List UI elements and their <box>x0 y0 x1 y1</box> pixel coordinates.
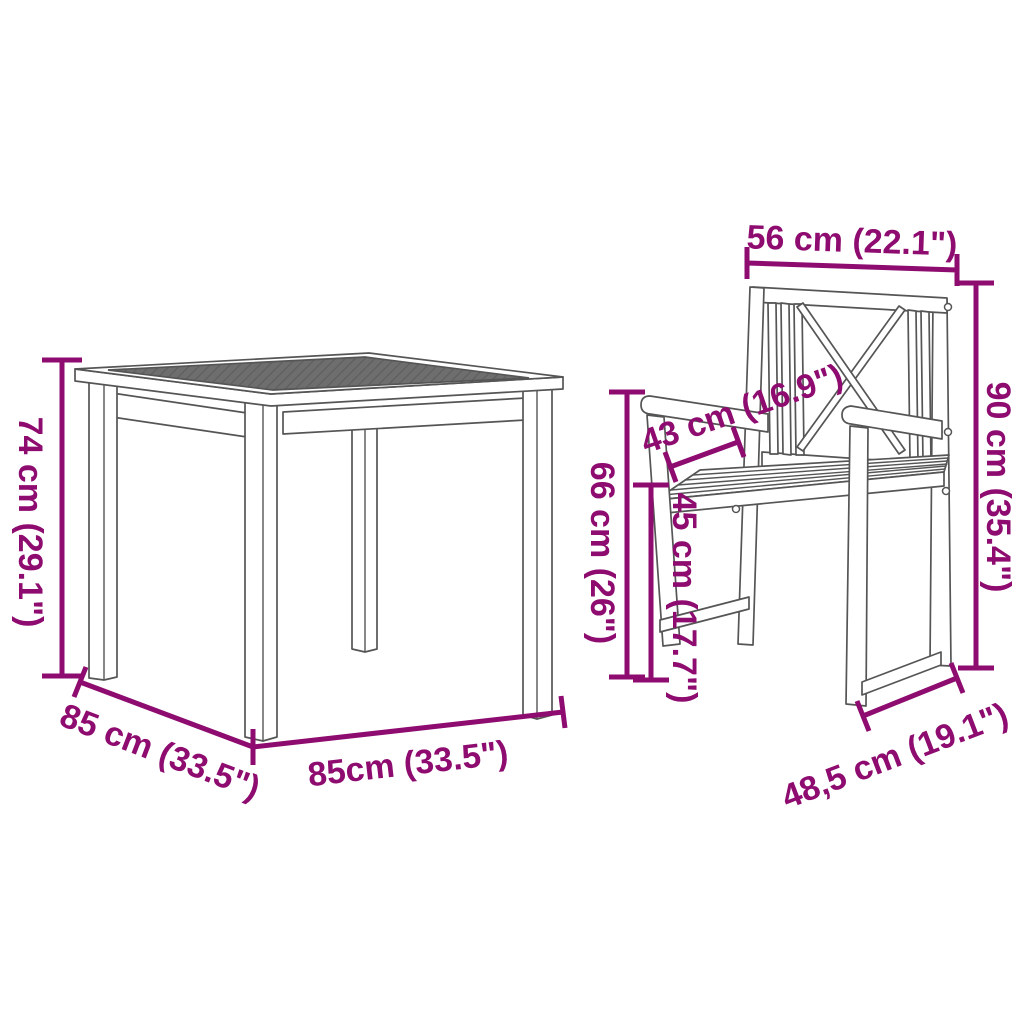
screw-icon <box>733 506 740 513</box>
chair-height-dimension: 90 cm (35.4") <box>958 283 1017 668</box>
table-width-dimension: 85cm (33.5") <box>253 696 565 794</box>
chair-armrest-height-dimension: 66 cm (26") <box>583 392 645 677</box>
chair-seat-width-label: 48,5 cm (19.1") <box>777 695 1014 816</box>
table-width-label: 85cm (33.5") <box>306 734 510 795</box>
chair-height-label: 90 cm (35.4") <box>979 382 1017 593</box>
chair-backrest-slat <box>921 311 931 463</box>
chair-back-width-label: 56 cm (22.1") <box>746 218 958 263</box>
chair-seat-width-dimension: 48,5 cm (19.1") <box>777 663 1014 817</box>
table-height-label: 74 cm (29.1") <box>11 417 49 628</box>
table-drawing <box>75 353 563 741</box>
chair-armrest-height-label: 66 cm (26") <box>583 462 621 644</box>
screw-icon <box>945 429 952 436</box>
table-leg-front <box>245 395 277 741</box>
table-leg-left <box>89 381 117 680</box>
chair-seat-height-label: 45 cm (17.7") <box>665 493 703 704</box>
dimension-diagram: 74 cm (29.1") 85 cm (33.5") 85cm (33.5")… <box>0 0 1024 1024</box>
chair-backrest-slat <box>908 310 918 462</box>
chair-back-width-dimension: 56 cm (22.1") <box>746 218 958 286</box>
chair-seat-height-dimension: 45 cm (17.7") <box>633 485 703 703</box>
table-width-line <box>253 696 565 747</box>
table-depth-dimension: 85 cm (33.5") <box>55 667 265 808</box>
table-height-dimension: 74 cm (29.1") <box>11 360 82 676</box>
chair-front-right-leg <box>846 426 868 706</box>
screw-icon <box>943 488 950 495</box>
screw-icon <box>945 304 952 311</box>
